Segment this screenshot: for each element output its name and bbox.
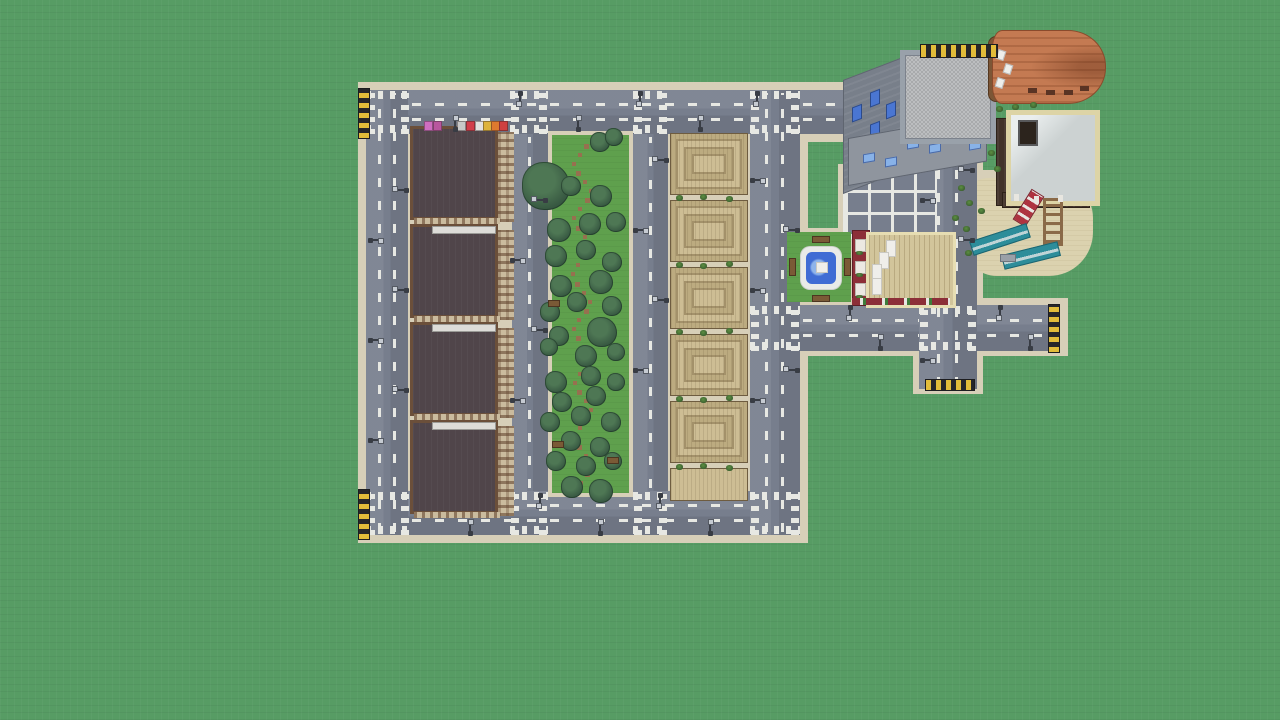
bush	[963, 226, 970, 232]
street-lamp-head	[643, 368, 649, 374]
game-viewport[interactable]	[0, 0, 1280, 720]
crosswalk-stripe	[659, 90, 667, 134]
road-west	[366, 90, 408, 535]
street-lamp	[708, 531, 713, 536]
park-bench	[552, 441, 564, 448]
door	[1058, 195, 1063, 202]
window-planter	[856, 251, 863, 255]
street-lamp	[878, 346, 883, 351]
street-lamp	[1028, 346, 1033, 351]
street-lamp-head	[708, 519, 714, 525]
park-bench	[607, 457, 619, 464]
street-lamp-arm	[393, 289, 406, 291]
street-lamp-head	[520, 258, 526, 264]
tree	[552, 392, 572, 412]
street-lamp-arm	[784, 229, 797, 231]
tree	[586, 386, 606, 406]
red-shop-awning-row	[852, 298, 950, 305]
white-house-chimney	[1018, 120, 1038, 146]
park-path-dot	[578, 153, 582, 157]
street-lamp-arm	[653, 159, 666, 161]
park-path-dot	[584, 309, 589, 314]
street-lamp-arm	[752, 289, 765, 291]
street-lamp-head	[378, 338, 384, 344]
apartment-building	[410, 322, 514, 418]
street-lamp-head	[378, 438, 384, 444]
park-path-dot	[576, 263, 580, 267]
street-lamp-arm	[959, 239, 972, 241]
street-lamp-arm	[370, 339, 383, 341]
street-lamp	[998, 305, 1003, 310]
tree	[589, 479, 613, 503]
street-lamp-head	[636, 101, 642, 107]
street-lamp	[368, 438, 373, 443]
park-path-dot	[588, 300, 592, 304]
tree	[545, 245, 567, 267]
street-lamp-arm	[879, 335, 881, 348]
park-path-dot	[584, 144, 589, 149]
rooftop-awning	[433, 121, 442, 131]
crosswalk-stripe	[920, 305, 928, 351]
bush	[994, 166, 1001, 172]
blue-window	[870, 89, 880, 108]
street-lamp-head	[958, 166, 964, 172]
street-lamp-arm	[653, 299, 666, 301]
apartment-building	[410, 420, 514, 516]
street-lamp-head	[468, 519, 474, 525]
street-lamp	[633, 368, 638, 373]
blue-window	[886, 101, 896, 120]
tree	[540, 338, 558, 356]
bush	[726, 328, 733, 334]
street-lamp-arm	[512, 399, 525, 401]
bush	[676, 195, 683, 201]
street-lamp-head	[1028, 334, 1034, 340]
fountain-center-block	[816, 262, 828, 273]
street-lamp	[468, 531, 473, 536]
roof-grain-overlay	[671, 134, 747, 194]
apartment-roof	[410, 224, 498, 318]
street-lamp-head	[783, 366, 789, 372]
tree	[547, 218, 571, 242]
street-lamp	[510, 398, 515, 403]
window-planter	[856, 273, 863, 277]
tree	[576, 240, 596, 260]
apartment-roof	[410, 420, 498, 514]
blue-window	[863, 152, 875, 163]
crosswalk-intersection	[919, 305, 977, 351]
quartz-stair-block	[872, 278, 882, 295]
bush	[700, 194, 707, 200]
park-path-dot	[573, 381, 577, 385]
apartment-south-facade	[414, 512, 500, 518]
tree	[589, 270, 613, 294]
crosswalk-intersection	[750, 305, 800, 351]
street-lamp	[368, 338, 373, 343]
roof-grain-overlay	[671, 402, 747, 462]
park-path-dot	[571, 272, 575, 276]
street-lamp-head	[656, 503, 662, 509]
street-lamp-head	[930, 198, 936, 204]
rooftop-awning	[457, 121, 466, 131]
park-path-dot	[572, 216, 576, 220]
street-lamp	[453, 127, 458, 132]
street-lamp-arm	[393, 389, 406, 391]
park-path-dot	[583, 235, 587, 239]
street-lamp	[698, 127, 703, 132]
street-lamp	[750, 288, 755, 293]
street-lamp	[795, 228, 800, 233]
bush	[726, 261, 733, 267]
street-lamp-arm	[532, 199, 545, 201]
hazard-barrier	[358, 489, 370, 540]
street-lamp	[750, 178, 755, 183]
street-lamp	[664, 298, 669, 303]
park-path-dot	[576, 336, 581, 341]
tree	[561, 431, 581, 451]
hall-window	[1064, 90, 1073, 95]
street-lamp	[510, 258, 515, 263]
tree	[571, 406, 591, 426]
park-path-dot	[575, 282, 580, 287]
tree	[540, 412, 560, 432]
tree	[579, 213, 601, 235]
terraced-building	[670, 267, 748, 329]
crosswalk-intersection	[366, 90, 410, 134]
bush	[726, 196, 733, 202]
tree	[581, 366, 601, 386]
hazard-barrier	[358, 88, 370, 139]
street-lamp-head	[378, 238, 384, 244]
street-lamp	[404, 188, 409, 193]
apartment-east-facade	[498, 328, 514, 418]
roof-grain-overlay	[671, 201, 747, 261]
tree	[575, 345, 597, 367]
tree	[561, 176, 581, 196]
terraced-building	[670, 334, 748, 396]
crosswalk-stripe	[401, 90, 409, 134]
street-lamp-head	[753, 101, 759, 107]
hall-window	[1080, 86, 1089, 91]
street-lamp	[576, 127, 581, 132]
blue-window	[852, 104, 862, 123]
street-lamp-head	[643, 228, 649, 234]
street-lamp-arm	[519, 93, 521, 106]
tree	[561, 476, 583, 498]
apartment-east-facade	[498, 230, 514, 320]
rooftop-awning	[424, 121, 433, 131]
fountain-bench-west	[789, 258, 796, 276]
street-lamp-arm	[699, 116, 701, 129]
street-lamp-head	[453, 115, 459, 121]
bush	[700, 263, 707, 269]
terraced-building	[670, 133, 748, 195]
hazard-barrier	[925, 379, 975, 391]
street-lamp	[920, 198, 925, 203]
street-lamp	[848, 305, 853, 310]
street-lamp-head	[531, 326, 537, 332]
crosswalk-stripe	[751, 491, 759, 535]
tree	[576, 456, 596, 476]
street-lamp-arm	[512, 259, 525, 261]
apartment-east-facade	[498, 426, 514, 516]
street-lamp-arm	[849, 307, 851, 320]
crosswalk-stripe	[968, 305, 976, 351]
playground-bench	[1000, 254, 1016, 262]
street-lamp	[368, 238, 373, 243]
street-lamp-head	[392, 386, 398, 392]
street-lamp-arm	[635, 229, 648, 231]
bush	[676, 262, 683, 268]
street-lamp	[795, 368, 800, 373]
park-path-dot	[572, 327, 576, 331]
fountain-bench-east	[844, 258, 851, 276]
rooftop-awning	[499, 121, 508, 131]
street-lamp-head	[698, 115, 704, 121]
bush	[700, 397, 707, 403]
apartment-building	[410, 126, 514, 222]
street-lamp-head	[536, 503, 542, 509]
bush	[996, 106, 1003, 112]
fountain-bench-south	[812, 295, 830, 302]
bush	[676, 396, 683, 402]
street-lamp	[664, 158, 669, 163]
street-lamp	[970, 238, 975, 243]
street-lamp-head	[652, 296, 658, 302]
street-lamp-arm	[752, 179, 765, 181]
tree	[602, 252, 622, 272]
bush	[700, 330, 707, 336]
street-lamp-head	[598, 519, 604, 525]
walkway-canopy	[432, 226, 496, 234]
street-lamp	[920, 358, 925, 363]
street-lamp-head	[958, 236, 964, 242]
street-lamp-arm	[599, 520, 601, 533]
street-lamp	[598, 531, 603, 536]
street-lamp-head	[996, 315, 1002, 321]
bush	[952, 215, 959, 221]
crosswalk-stripe	[539, 90, 547, 134]
street-lamp-arm	[454, 116, 456, 129]
park-path-dot	[577, 390, 582, 395]
street-lamp-head	[846, 315, 852, 321]
bush	[676, 464, 683, 470]
bush	[676, 329, 683, 335]
tree	[606, 212, 626, 232]
terraced-building	[670, 468, 748, 501]
street-lamp-arm	[709, 520, 711, 533]
bush	[965, 250, 972, 256]
crosswalk-stripe	[791, 491, 799, 535]
street-lamp-arm	[635, 369, 648, 371]
street-lamp-arm	[639, 93, 641, 106]
street-lamp-arm	[959, 169, 972, 171]
street-lamp-head	[520, 398, 526, 404]
street-lamp-arm	[539, 495, 541, 508]
street-lamp-arm	[784, 369, 797, 371]
hall-window	[1046, 90, 1055, 95]
blue-window	[929, 143, 941, 154]
street-lamp-arm	[756, 93, 758, 106]
street-lamp-arm	[532, 329, 545, 331]
park-path-dot	[578, 207, 582, 211]
crosswalk-stripe	[791, 305, 799, 351]
street-lamp-arm	[999, 307, 1001, 320]
hazard-barrier	[1048, 304, 1060, 353]
crosswalk-stripe	[791, 90, 799, 134]
street-lamp-arm	[370, 239, 383, 241]
street-lamp	[518, 91, 523, 96]
blue-window	[885, 156, 897, 167]
tree	[567, 292, 587, 312]
bush	[700, 463, 707, 469]
street-lamp	[404, 388, 409, 393]
crosswalk-intersection	[366, 491, 410, 535]
street-lamp-head	[392, 286, 398, 292]
street-lamp-arm	[393, 189, 406, 191]
park-path-dot	[572, 162, 576, 166]
street-lamp-arm	[577, 116, 579, 129]
park-path-dot	[577, 318, 581, 322]
street-lamp-head	[930, 358, 936, 364]
street-lamp	[970, 168, 975, 173]
bush	[726, 465, 733, 471]
street-lamp	[633, 228, 638, 233]
tree	[605, 128, 623, 146]
crosswalk-stripe	[751, 305, 759, 351]
street-lamp-head	[652, 156, 658, 162]
walkway-canopy	[432, 422, 496, 430]
hazard-barrier	[920, 44, 998, 58]
stone-building-gravel-roof	[900, 50, 996, 144]
street-lamp	[658, 493, 663, 498]
roof-grain-overlay	[671, 268, 747, 328]
street-lamp-head	[783, 226, 789, 232]
street-lamp-arm	[922, 359, 935, 361]
door	[1034, 196, 1039, 203]
tree	[545, 371, 567, 393]
street-lamp	[404, 288, 409, 293]
roof-grain-overlay	[671, 335, 747, 395]
park-bench	[548, 300, 560, 307]
street-lamp-head	[760, 178, 766, 184]
street-lamp-arm	[370, 439, 383, 441]
street-lamp-head	[760, 398, 766, 404]
street-lamp-head	[576, 115, 582, 121]
walkway-canopy	[432, 324, 496, 332]
terraced-building	[670, 200, 748, 262]
tree	[590, 185, 612, 207]
street-lamp-head	[878, 334, 884, 340]
street-lamp-head	[516, 101, 522, 107]
crosswalk-intersection	[750, 491, 800, 535]
street-lamp-head	[760, 288, 766, 294]
street-lamp-head	[392, 186, 398, 192]
apartment-building	[410, 224, 514, 320]
door	[1014, 194, 1019, 201]
street-lamp-arm	[659, 495, 661, 508]
tree	[602, 296, 622, 316]
playground-climbing-frame	[1043, 198, 1063, 246]
street-lamp-arm	[469, 520, 471, 533]
street-lamp	[638, 91, 643, 96]
street-lamp-arm	[1029, 335, 1031, 348]
bush	[958, 185, 965, 191]
crosswalk-intersection	[510, 90, 548, 134]
street-lamp-head	[531, 196, 537, 202]
street-lamp	[750, 398, 755, 403]
crosswalk-stripe	[634, 491, 642, 535]
street-lamp	[538, 493, 543, 498]
tree	[607, 343, 625, 361]
park-path-dot	[583, 180, 587, 184]
roof-grain-overlay	[671, 469, 747, 500]
bush	[978, 208, 985, 214]
street-lamp-arm	[922, 199, 935, 201]
apartment-roof	[410, 322, 498, 416]
apartment-roof	[410, 126, 498, 220]
bush	[988, 150, 995, 156]
bush	[1030, 102, 1037, 108]
terraced-building	[670, 401, 748, 463]
park-path-dot	[578, 426, 582, 430]
fountain-bench-north	[812, 236, 830, 243]
street-lamp-arm	[752, 399, 765, 401]
street-lamp	[543, 328, 548, 333]
street-lamp	[543, 198, 548, 203]
crosswalk-stripe	[401, 491, 409, 535]
street-lamp	[755, 91, 760, 96]
hall-window	[1028, 88, 1037, 93]
bush	[966, 200, 973, 206]
bush	[1012, 104, 1019, 110]
road-center-east	[633, 134, 668, 491]
park-path-dot	[576, 171, 581, 176]
tree	[607, 373, 625, 391]
bush	[726, 395, 733, 401]
tree	[601, 412, 621, 432]
tree	[546, 451, 566, 471]
rooftop-awning	[466, 121, 475, 131]
apartment-east-facade	[498, 132, 514, 222]
